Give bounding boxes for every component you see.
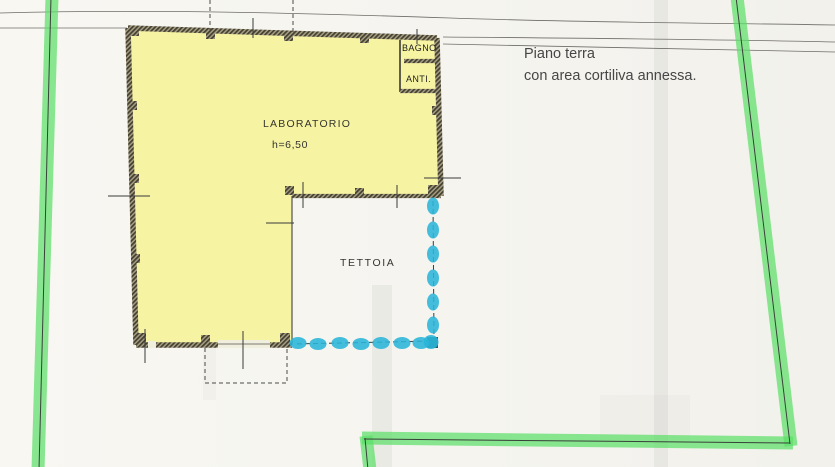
room-label-tettoia: TETTOIA	[340, 257, 395, 269]
laboratorio-floor-area	[128, 28, 441, 345]
room-label-laboratorio: LABORATORIO	[263, 118, 351, 130]
courtyard-boundary-cyan	[290, 198, 440, 351]
room-height-note: h=6,50	[272, 139, 308, 151]
plan-title-line1: Piano terra	[524, 46, 595, 62]
plan-drawing	[0, 0, 835, 467]
room-label-bagno: BAGNO	[402, 43, 437, 53]
floor-plan-scan: BAGNO ANTI. LABORATORIO h=6,50 TETTOIA P…	[0, 0, 835, 467]
dashed-annex-rectangle	[205, 348, 287, 383]
building-laboratorio	[128, 26, 441, 348]
plan-title-line2: con area cortiliva annessa.	[524, 68, 697, 84]
boundary-right	[737, 0, 791, 446]
wall-opening-small	[148, 341, 156, 348]
room-label-anti: ANTI.	[406, 74, 431, 84]
